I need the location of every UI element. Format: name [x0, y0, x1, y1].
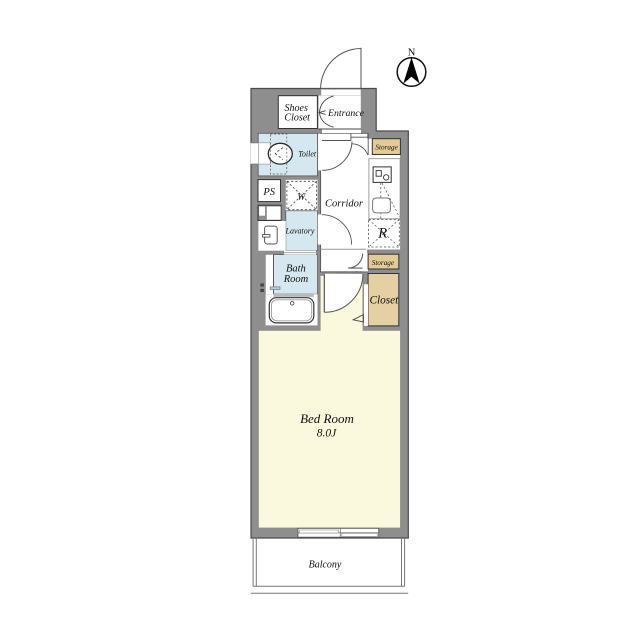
svg-text:Corridor: Corridor: [325, 198, 364, 209]
svg-text:8.0J: 8.0J: [317, 428, 337, 440]
svg-text:Bed Room: Bed Room: [300, 411, 354, 426]
svg-text:R: R: [377, 226, 387, 242]
svg-text:Balcony: Balcony: [309, 560, 342, 571]
svg-text:Lavatory: Lavatory: [285, 227, 315, 236]
svg-text:N: N: [408, 48, 416, 59]
svg-text:Closet: Closet: [284, 113, 310, 124]
svg-text:Room: Room: [283, 274, 309, 285]
svg-text:Entrance: Entrance: [327, 108, 365, 119]
svg-text:PS: PS: [262, 187, 275, 198]
svg-text:Bath: Bath: [286, 264, 306, 275]
svg-text:Storage: Storage: [372, 259, 395, 267]
svg-text:Storage: Storage: [375, 143, 398, 151]
svg-text:W: W: [297, 193, 306, 203]
svg-text:Closet: Closet: [369, 294, 399, 306]
svg-text:Toilet: Toilet: [298, 150, 317, 159]
